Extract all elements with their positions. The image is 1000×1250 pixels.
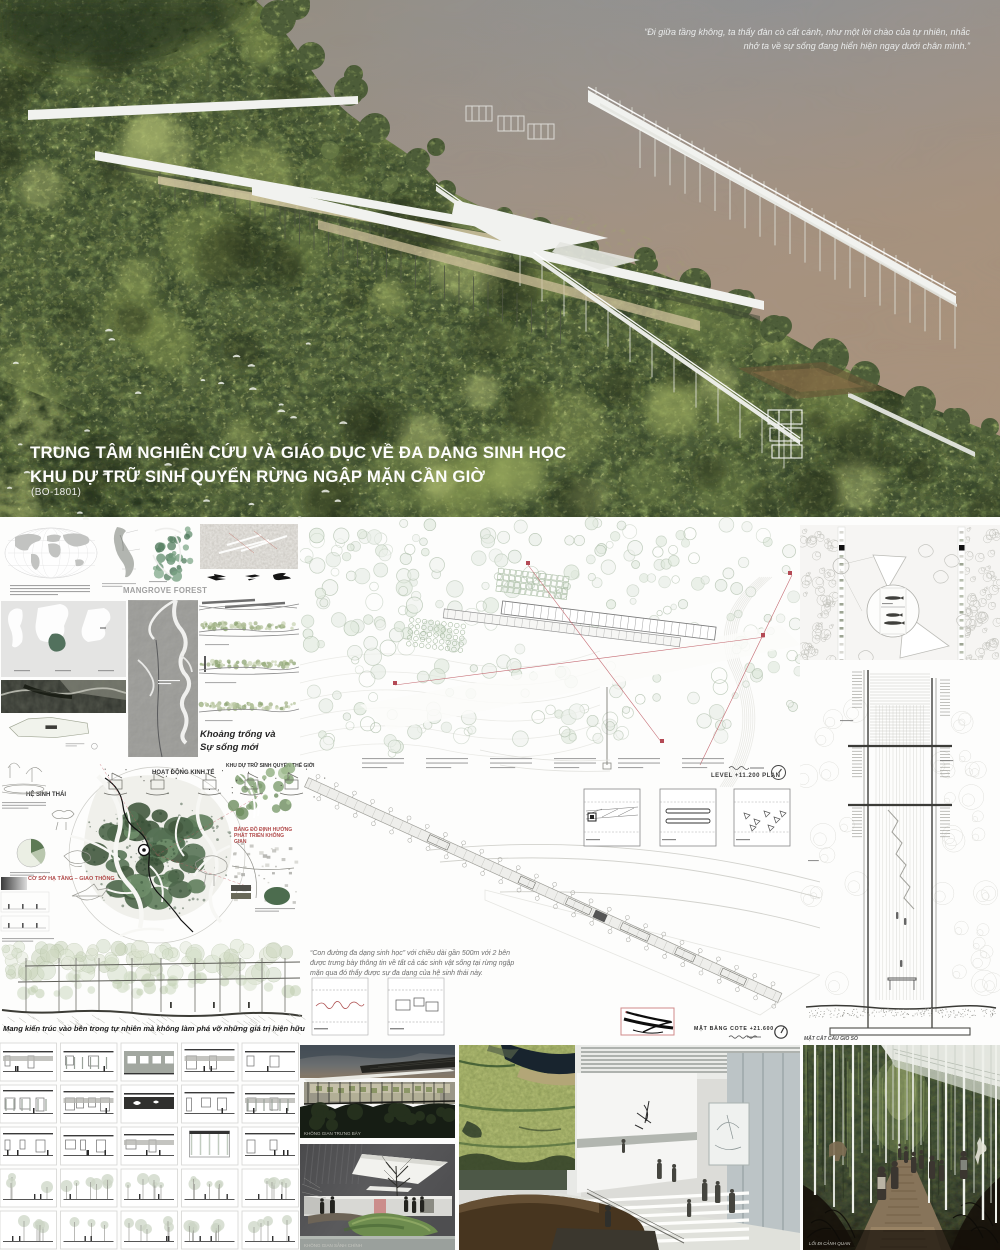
svg-text:KHÔNG GIAN TRƯNG BÀY: KHÔNG GIAN TRƯNG BÀY xyxy=(304,1130,361,1136)
svg-text:LỐI ĐI CẢNH QUAN: LỐI ĐI CẢNH QUAN xyxy=(809,1240,851,1246)
svg-text:KHÔNG GIAN SẢNH CHÍNH: KHÔNG GIAN SẢNH CHÍNH xyxy=(304,1242,362,1248)
